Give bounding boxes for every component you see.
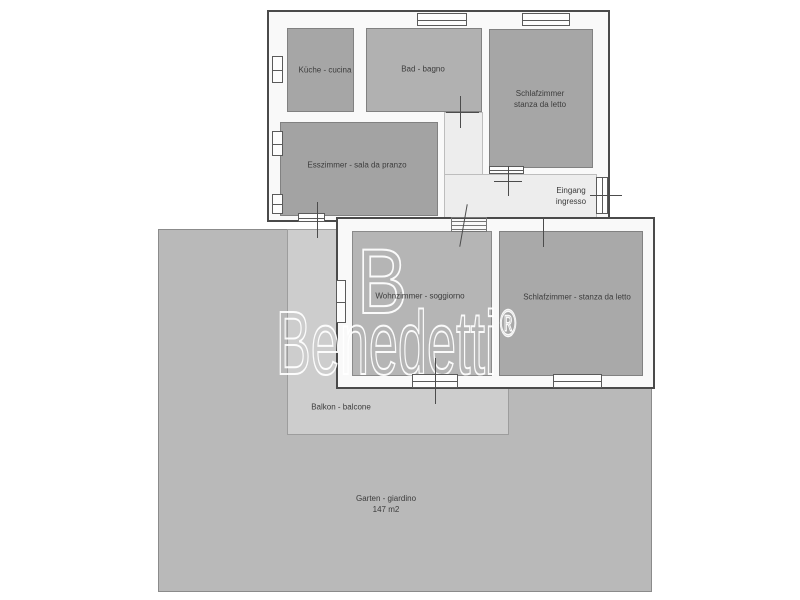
- window-symbol: [336, 280, 346, 323]
- benedetti-watermark: Benedetti®: [276, 299, 516, 389]
- window-symbol: [522, 13, 570, 26]
- label-bedroom-1-it: stanza da letto: [514, 100, 566, 111]
- window-symbol: [272, 56, 283, 83]
- door-swing-line: [446, 112, 479, 113]
- label-kitchen: Küche - cucina: [299, 66, 352, 77]
- label-garden-name: Garten - giardino: [356, 494, 416, 505]
- registered-trademark-icon: ®: [500, 303, 516, 345]
- window-symbol: [272, 131, 283, 156]
- door-swing-line: [494, 181, 522, 182]
- room-bedroom-2: [499, 231, 643, 376]
- window-symbol: [489, 166, 524, 174]
- label-garden: Garten - giardino 147 m2: [356, 494, 416, 516]
- label-bedroom-1: Schlafzimmer stanza da letto: [514, 89, 566, 111]
- label-entrance: Eingang ingresso: [556, 186, 586, 208]
- window-symbol: [298, 213, 325, 222]
- window-symbol: [272, 194, 283, 214]
- label-balcony: Balkon - balcone: [311, 403, 371, 414]
- floor-plan: B Benedetti® Küche - cucina Bad - bagno …: [0, 0, 800, 600]
- window-symbol: [553, 374, 602, 388]
- label-dining: Esszimmer - sala da pranzo: [307, 161, 406, 172]
- door-swing-line: [435, 358, 436, 404]
- label-entrance-it: ingresso: [556, 197, 586, 208]
- label-bedroom-2: Schlafzimmer - stanza da letto: [523, 293, 631, 304]
- label-entrance-de: Eingang: [556, 186, 586, 197]
- label-living: Wohnzimmer - soggiorno: [375, 292, 464, 303]
- stairs-symbol: [451, 217, 487, 232]
- door-swing-line: [590, 195, 622, 196]
- label-bathroom: Bad - bagno: [401, 65, 445, 76]
- door-swing-line: [317, 202, 318, 238]
- label-garden-size: 147 m2: [356, 505, 416, 516]
- door-swing-line: [543, 217, 544, 247]
- window-symbol: [417, 13, 467, 26]
- label-bedroom-1-de: Schlafzimmer: [514, 89, 566, 100]
- watermark-brand-text: Benedetti: [276, 294, 497, 394]
